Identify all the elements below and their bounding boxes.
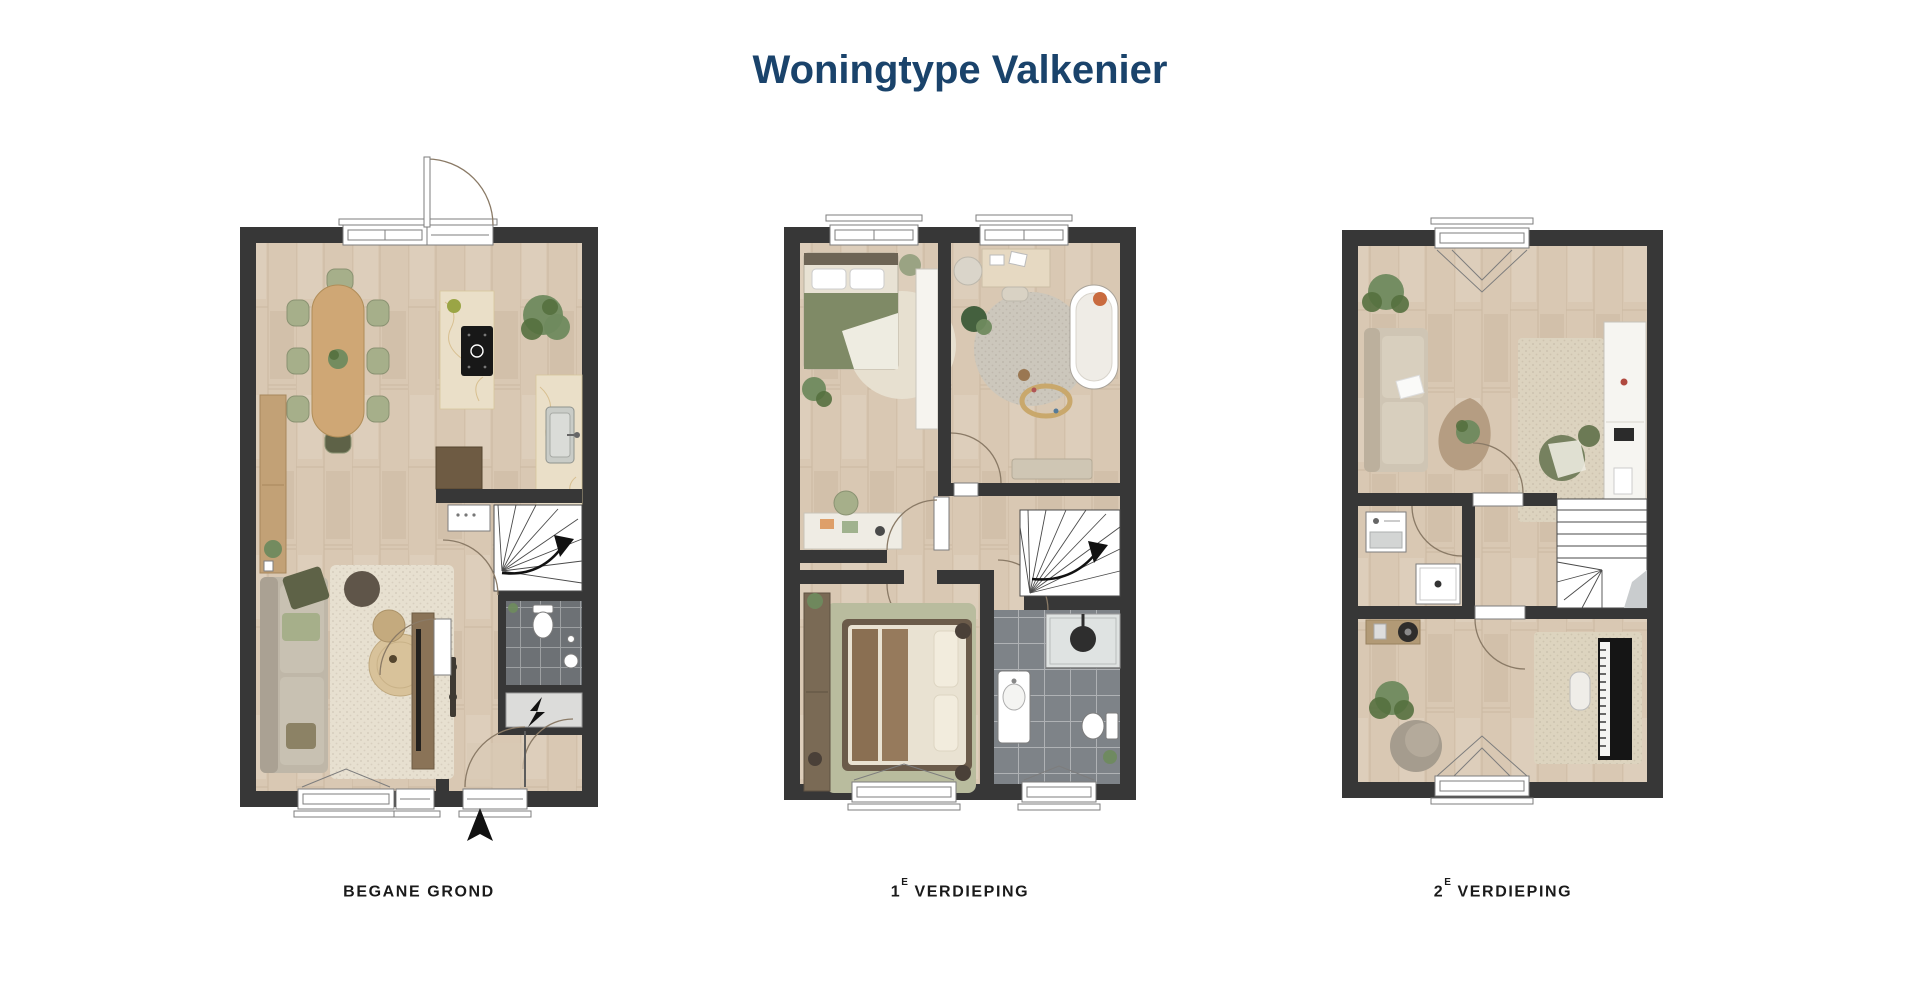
- tv-cabinet: [412, 613, 434, 769]
- piano-stool: [1570, 672, 1590, 710]
- plant: [264, 540, 282, 558]
- floorplan-sheet: Woningtype Valkenier: [0, 0, 1920, 989]
- toy: [1093, 292, 1107, 306]
- floor-label-text: BEGANE GROND: [343, 883, 495, 900]
- toilet-room: [506, 601, 582, 685]
- floor-label-2e-verdieping: 2E VERDIEPING: [1434, 882, 1572, 901]
- bed-single: [804, 253, 898, 369]
- window: [976, 215, 1072, 245]
- doormat: [467, 743, 525, 787]
- floor-label-text: 2: [1434, 883, 1445, 900]
- floor-label-begane-grond: BEGANE GROND: [343, 882, 495, 901]
- stool: [955, 623, 971, 639]
- window: [826, 215, 922, 245]
- door-opening: [954, 483, 978, 496]
- pouf: [1390, 720, 1442, 772]
- hall-cabinet: [448, 505, 490, 531]
- stairs: [1020, 510, 1120, 596]
- bathroom: [994, 610, 1120, 784]
- dryer: [1416, 564, 1460, 604]
- stairs: [1557, 499, 1647, 608]
- plant: [807, 593, 823, 609]
- dining-table: [312, 285, 364, 437]
- stairs: [494, 505, 582, 591]
- sideboard: [260, 395, 286, 573]
- floorplan-2e-verdieping: [1342, 210, 1663, 820]
- laptop: [1614, 428, 1634, 441]
- north-arrow-icon: [466, 808, 494, 847]
- washbasin: [998, 671, 1030, 743]
- sofa: [1364, 328, 1428, 472]
- wardrobe: [916, 269, 938, 429]
- desk-chair: [834, 491, 858, 515]
- floorplan-svg-1e-verdieping: [784, 207, 1136, 821]
- entrance-door: [424, 157, 493, 245]
- record-player-cabinet: [1366, 620, 1420, 644]
- kitchen-cabinet: [436, 447, 482, 489]
- kitchen-counter-sink: [536, 375, 582, 505]
- page-title: Woningtype Valkenier: [0, 48, 1920, 93]
- teddy: [1018, 369, 1030, 381]
- floorplan-svg-begane-grond: [240, 147, 598, 841]
- wardrobe: [804, 593, 830, 791]
- floorplan-begane-grond: [240, 147, 598, 841]
- plant: [1103, 750, 1117, 764]
- desk-chair: [1002, 287, 1028, 301]
- cooktop: [461, 326, 493, 376]
- cushion: [1578, 425, 1600, 447]
- plant: [508, 603, 518, 613]
- door-jamb: [934, 497, 949, 550]
- floor-label-1e-verdieping: 1E VERDIEPING: [891, 882, 1029, 901]
- door-opening: [1473, 493, 1523, 506]
- washbasin: [564, 654, 578, 668]
- door-opening: [1475, 606, 1525, 619]
- floorplan-1e-verdieping: [784, 207, 1136, 821]
- pouf: [954, 257, 982, 285]
- stool: [955, 765, 971, 781]
- sofa: [260, 566, 330, 773]
- floorplan-svg-2e-verdieping: [1342, 210, 1663, 820]
- bench: [1012, 459, 1092, 479]
- floor-label-text: 1: [891, 883, 902, 900]
- crib: [1070, 285, 1118, 389]
- shower: [1046, 614, 1120, 668]
- desk-unit: [1604, 322, 1646, 526]
- toilet: [1082, 713, 1118, 739]
- washing-machine: [1366, 512, 1406, 552]
- toilet: [533, 612, 553, 638]
- kitchen-island: [440, 291, 494, 409]
- piano: [1598, 638, 1632, 760]
- bed-master: [842, 619, 972, 781]
- pouf: [344, 571, 380, 607]
